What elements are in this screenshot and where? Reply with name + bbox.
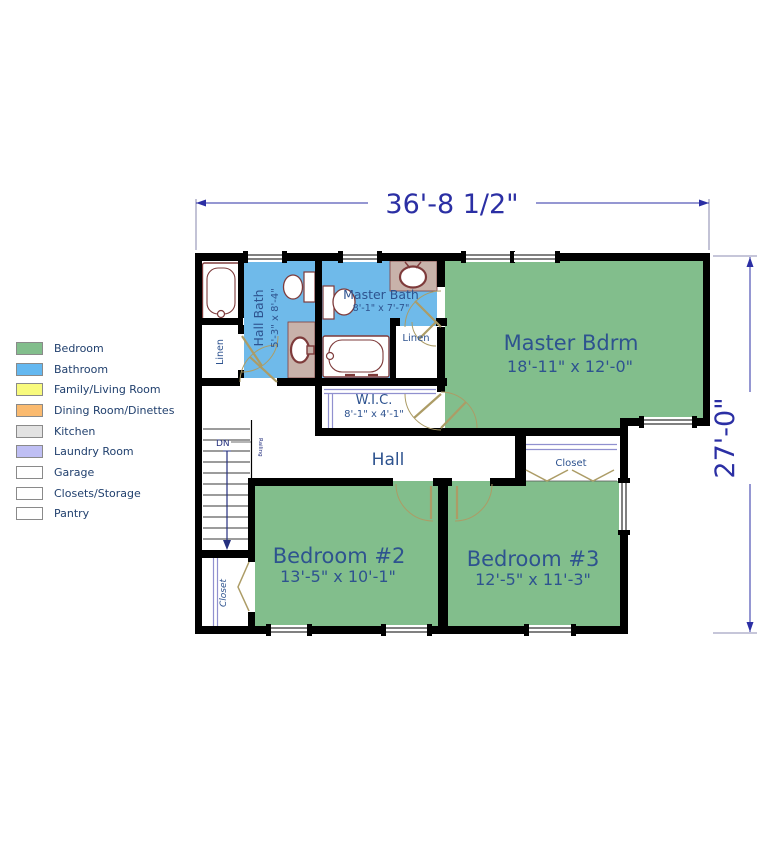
legend-item-label: Dining Room/Dinettes — [54, 404, 174, 417]
bedroom2-closet-label: Closet — [219, 579, 229, 608]
legend-item: Bedroom — [16, 338, 186, 359]
wic-label: W.I.C. — [356, 393, 393, 408]
hall-bath-label: Hall Bath — [251, 289, 266, 346]
legend-swatch — [16, 363, 43, 376]
master-bath-dims: 8'-1" x 7'-7" — [353, 303, 410, 314]
legend-item-label: Bedroom — [54, 342, 104, 355]
hall-label: Hall — [372, 450, 405, 470]
legend-item-label: Garage — [54, 466, 94, 479]
window — [266, 624, 312, 636]
legend-item-label: Bathroom — [54, 363, 108, 376]
master-bath-label: Master Bath — [343, 287, 419, 302]
master-linen-label: Linen — [402, 333, 429, 344]
legend-swatch — [16, 507, 43, 520]
bedroom3-closet-bifold-doors — [526, 470, 617, 481]
width-dimension-label: 36'-8 1/2" — [385, 189, 518, 220]
legend-item-label: Kitchen — [54, 425, 95, 438]
legend-swatch — [16, 404, 43, 417]
legend-swatch — [16, 466, 43, 479]
legend-item: Pantry — [16, 504, 186, 525]
legend-swatch — [16, 425, 43, 438]
window — [524, 624, 576, 636]
legend-swatch — [16, 487, 43, 500]
stairs-dn-label: DN — [216, 439, 230, 449]
bedroom3-closet-label: Closet — [555, 458, 586, 469]
legend-item-label: Closets/Storage — [54, 487, 141, 500]
hall-linen-label: Linen — [215, 339, 226, 365]
bedroom2-label: Bedroom #2 — [273, 544, 406, 568]
legend-swatch — [16, 445, 43, 458]
legend-item: Laundry Room — [16, 441, 186, 462]
legend-item: Family/Living Room — [16, 379, 186, 400]
legend-item-label: Family/Living Room — [54, 383, 161, 396]
master-bath-tub-icon — [323, 336, 389, 377]
stair-direction-arrow — [223, 451, 231, 550]
legend-swatch — [16, 383, 43, 396]
legend-item-label: Pantry — [54, 507, 89, 520]
bedroom3-dims: 12'-5" x 11'-3" — [475, 570, 591, 589]
bedroom2-closet-bifold-door — [238, 562, 249, 611]
hall-bath-tub-icon — [203, 263, 240, 321]
bedroom2-dims: 13'-5" x 10'-1" — [280, 567, 396, 586]
legend-item: Bathroom — [16, 359, 186, 380]
master-bedroom-label: Master Bdrm — [504, 331, 639, 355]
window — [243, 251, 287, 263]
legend-item: Kitchen — [16, 421, 186, 442]
legend-item-label: Laundry Room — [54, 445, 134, 458]
window — [338, 251, 382, 263]
window — [618, 478, 630, 535]
legend-swatch — [16, 342, 43, 355]
master-bedroom-dims: 18'-11" x 12'-0" — [507, 357, 633, 376]
hall-bath-dims: 5'-3" x 8'-4" — [270, 288, 281, 348]
window — [514, 251, 560, 263]
legend: Bedroom Bathroom Family/Living Room Dini… — [16, 338, 186, 524]
stairs-railing-label: Railing — [257, 438, 263, 457]
wic-dims: 8'-1" x 4'-1" — [344, 409, 404, 420]
legend-item: Garage — [16, 462, 186, 483]
bd2-closet-shelf-lines — [214, 558, 218, 628]
wic-door — [405, 394, 441, 430]
window — [461, 251, 515, 263]
legend-item: Dining Room/Dinettes — [16, 400, 186, 421]
window — [381, 624, 432, 636]
window — [639, 416, 697, 428]
bedroom3-label: Bedroom #3 — [467, 547, 600, 571]
legend-item: Closets/Storage — [16, 483, 186, 504]
bd3-closet-shelf-lines — [526, 445, 617, 450]
floor-plan-page: Bedroom Bathroom Family/Living Room Dini… — [0, 0, 781, 849]
height-dimension-label: 27'-0" — [710, 397, 741, 478]
